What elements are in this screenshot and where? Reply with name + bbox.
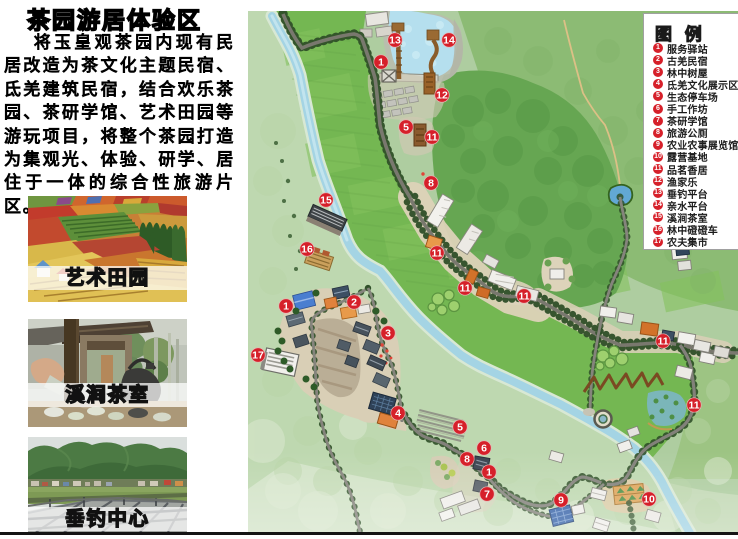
svg-text:4: 4 [395, 408, 401, 420]
svg-text:14: 14 [443, 34, 455, 46]
svg-text:11: 11 [688, 399, 699, 411]
svg-text:9: 9 [558, 495, 564, 507]
svg-text:5: 5 [403, 122, 409, 134]
svg-text:8: 8 [464, 454, 470, 466]
svg-text:15: 15 [320, 194, 332, 206]
svg-text:11: 11 [459, 282, 470, 294]
svg-text:7: 7 [484, 489, 490, 501]
svg-text:12: 12 [436, 89, 448, 101]
svg-text:2: 2 [351, 297, 357, 309]
svg-text:13: 13 [389, 34, 401, 46]
svg-text:11: 11 [426, 131, 437, 143]
svg-text:10: 10 [643, 493, 655, 505]
svg-text:17: 17 [252, 349, 264, 361]
svg-text:1: 1 [486, 467, 492, 479]
svg-text:1: 1 [378, 57, 384, 69]
svg-text:8: 8 [428, 178, 434, 190]
svg-text:1: 1 [283, 301, 289, 313]
svg-text:3: 3 [385, 328, 391, 340]
svg-text:5: 5 [457, 422, 463, 434]
svg-text:11: 11 [657, 335, 668, 347]
svg-text:16: 16 [301, 243, 313, 255]
svg-text:6: 6 [481, 443, 487, 455]
svg-text:11: 11 [431, 247, 442, 259]
svg-text:11: 11 [518, 290, 529, 302]
